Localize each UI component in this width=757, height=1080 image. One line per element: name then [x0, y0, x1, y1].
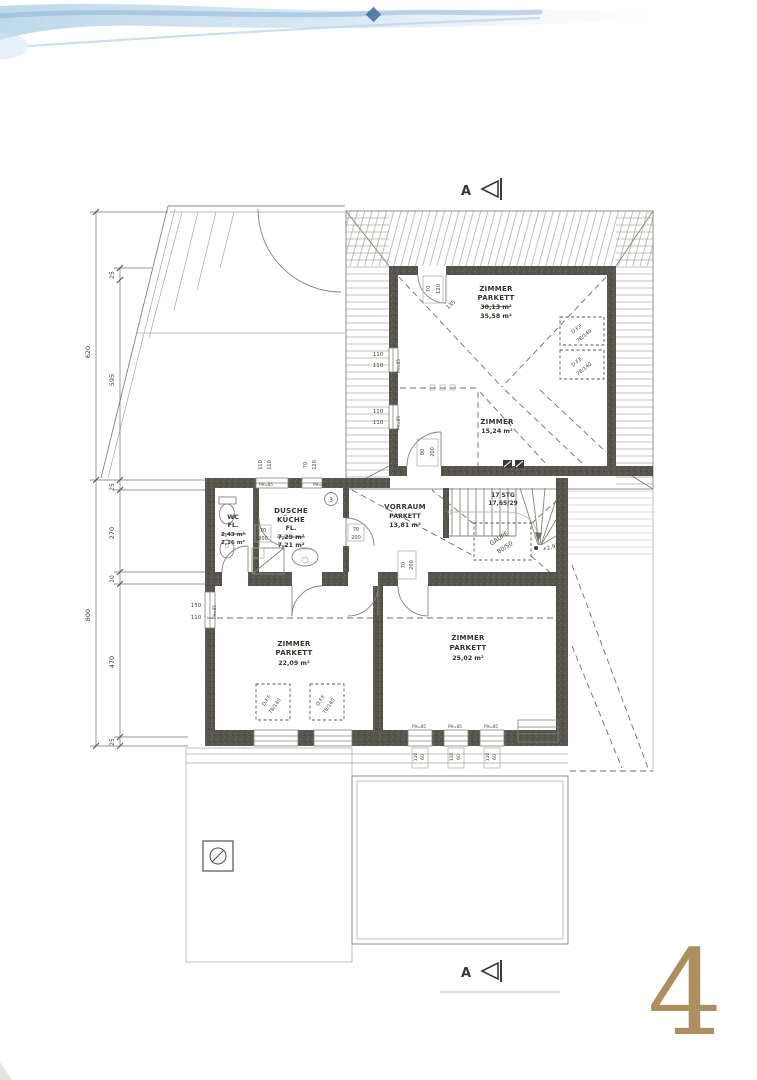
dim-label: 120	[312, 460, 318, 470]
dim-label: 70	[401, 562, 407, 568]
dim-label: 800	[84, 609, 92, 621]
floor-plan-page: { "page": { "number": "4" }, "section_ma…	[0, 0, 757, 1080]
floor-plan-drawing: ZIMMER PARKETT 30,13 m² 35,58 m² ZIMMER …	[0, 0, 757, 1080]
stairs-dim-label: 17,65/29	[488, 500, 518, 507]
dim-label: PH=85	[412, 724, 426, 729]
terrace-door-arc	[258, 209, 341, 292]
room-label-kueche: KÜCHE	[277, 515, 305, 524]
dim-label: PH=85	[396, 416, 401, 430]
dim-label: 110	[191, 615, 202, 621]
dim-label: 70	[260, 528, 266, 534]
room-label-vorraum: VORRAUM	[384, 503, 426, 511]
toilet-tank	[219, 497, 236, 504]
dim-label: 60	[492, 754, 498, 760]
room-label-zimmer-top: ZIMMER	[479, 285, 513, 293]
dim-label: PH=85	[448, 724, 462, 729]
dim-label: 60	[420, 754, 426, 760]
roof-hatch-right	[616, 211, 653, 489]
dim-label: PH=85	[259, 482, 273, 487]
section-arrow-top-icon	[482, 181, 498, 197]
room-label-zimmer-left: ZIMMER	[277, 640, 311, 648]
dim-label: 110	[373, 420, 384, 426]
room-floor-kueche: FL.	[286, 525, 297, 532]
roof-hatch-lower-right	[568, 489, 653, 560]
dim-label: 200	[430, 447, 436, 457]
section-marker-bottom-label: A	[461, 966, 471, 981]
dim-label: 110	[373, 352, 384, 358]
room-area-zimmer-right: 25,02 m²	[452, 655, 484, 662]
dim-label: 595	[108, 374, 116, 386]
roof-hatch-left	[346, 211, 389, 489]
dim-label: 110	[485, 753, 491, 762]
room-floor-zimmer-right: PARKETT	[450, 644, 487, 652]
dim-label: 70	[426, 285, 432, 292]
gaupe-box	[474, 523, 531, 560]
dim-label: 150	[191, 603, 202, 609]
dim-label: 470	[108, 656, 116, 668]
section-arrow-bottom-icon	[482, 963, 498, 979]
dim-label: 60	[456, 754, 462, 760]
room-label-wc: WC	[227, 514, 239, 521]
lower-terraces	[186, 748, 568, 962]
room-label-zimmer-right: ZIMMER	[451, 634, 485, 642]
swoosh-band	[0, 4, 648, 40]
dim-label: 110	[267, 460, 273, 470]
dim-label: 110	[449, 753, 455, 762]
dim-label: PH=85	[313, 482, 327, 487]
corner-smudge	[0, 1062, 12, 1080]
section-marker-top-label: A	[461, 184, 471, 199]
lattice-terrace	[352, 776, 568, 944]
room-floor-zimmer-left: PARKETT	[276, 649, 313, 657]
dim-label: PH=85	[484, 724, 498, 729]
level-point	[534, 546, 538, 550]
stairs-count-label: 17 STG	[491, 492, 515, 499]
swoosh-blob	[0, 33, 28, 59]
dim-label: PH=85	[396, 359, 401, 373]
dim-label: 70	[353, 527, 359, 533]
room-area-wc: 2,16 m²	[221, 539, 246, 546]
room-area-vorraum: 13,81 m²	[389, 522, 421, 529]
dim-label: 200	[409, 560, 415, 570]
page-number: 4	[630, 928, 740, 1058]
dim-label: 25	[109, 271, 116, 279]
dim-label: 110	[373, 409, 384, 415]
dim-label: 270	[108, 527, 116, 539]
room-area-zimmer-top: 35,58 m²	[480, 313, 512, 320]
dim-label: 620	[84, 346, 92, 358]
room-area-old-wc: 2,43 m²	[221, 531, 246, 538]
dim-label: 25	[109, 738, 116, 746]
roof-hatch-top	[346, 211, 653, 266]
dim-label: 25	[109, 483, 116, 491]
room-label-zimmer-small: ZIMMER	[480, 418, 514, 426]
kitchen-number-label: 3	[329, 497, 333, 504]
dim-label: 200	[258, 536, 268, 542]
dim-label: PH=85	[212, 605, 217, 619]
dim-label: 200	[351, 535, 361, 541]
room-label-dusche: DUSCHE	[274, 507, 308, 515]
room-floor-vorraum: PARKETT	[389, 513, 421, 520]
room-area-old-zimmer-top: 30,13 m²	[480, 304, 512, 311]
dim-label: 110	[373, 363, 384, 369]
dim-label: 80	[420, 449, 426, 455]
dim-label: 110	[258, 460, 264, 470]
upper-terrace	[101, 206, 345, 478]
dim-label: 10	[109, 575, 116, 583]
dim-label: 110	[413, 753, 419, 762]
room-floor-zimmer-top: PARKETT	[478, 294, 515, 302]
room-floor-wc: FL.	[228, 522, 239, 529]
decor-swoosh	[0, 4, 648, 1080]
room-area-kueche: 7,21 m²	[277, 542, 304, 549]
room-area-old-kueche: 7,29 m²	[277, 534, 304, 541]
room-area-zimmer-left: 22,09 m²	[278, 660, 310, 667]
dim-label: 120	[436, 283, 442, 294]
room-area-zimmer-small: 15,24 m²	[481, 428, 513, 435]
dim-label: 70	[303, 462, 309, 468]
